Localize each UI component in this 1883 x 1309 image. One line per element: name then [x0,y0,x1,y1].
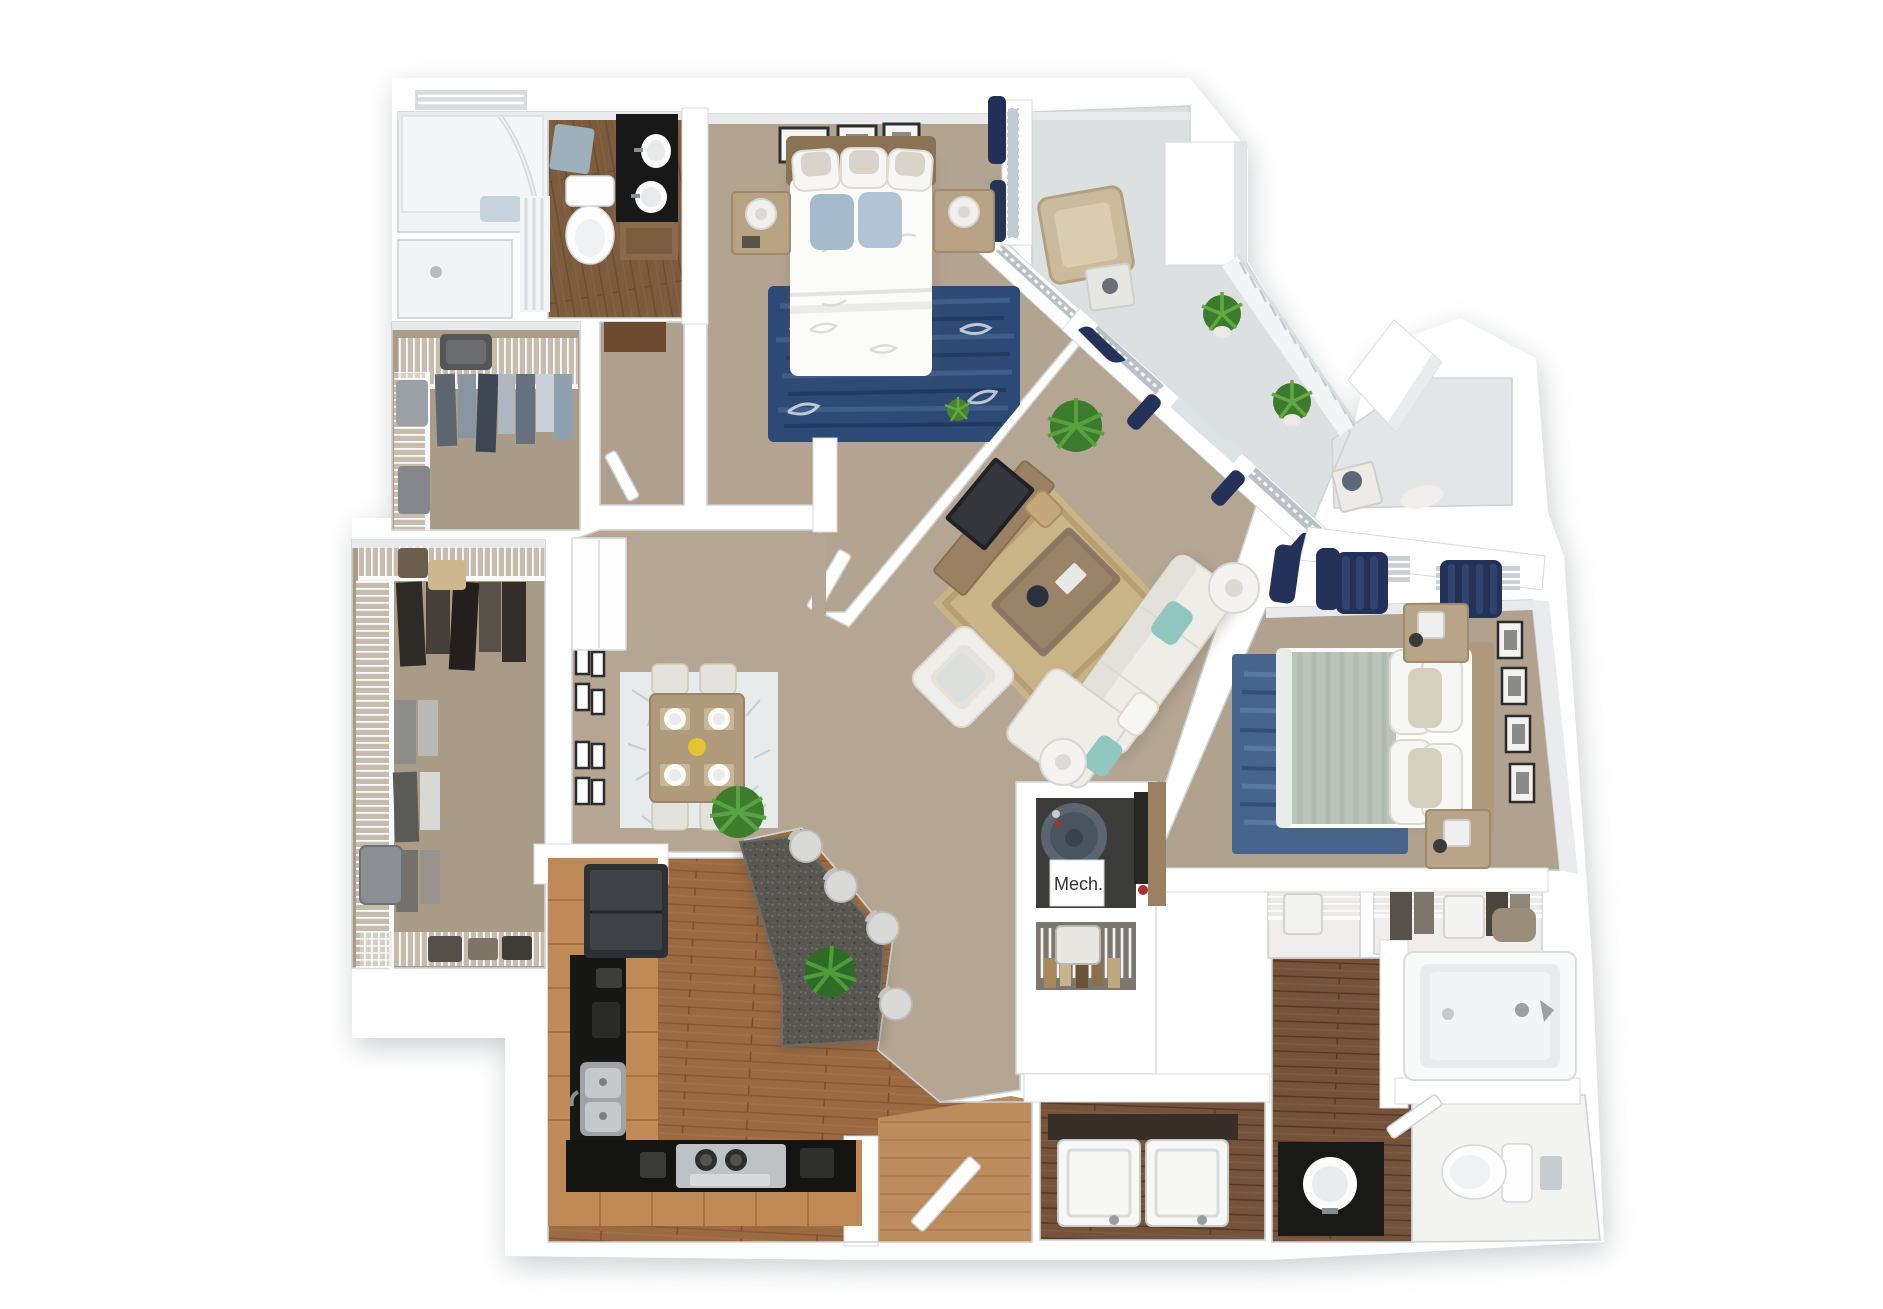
svg-text:Mech.: Mech. [1054,874,1103,894]
